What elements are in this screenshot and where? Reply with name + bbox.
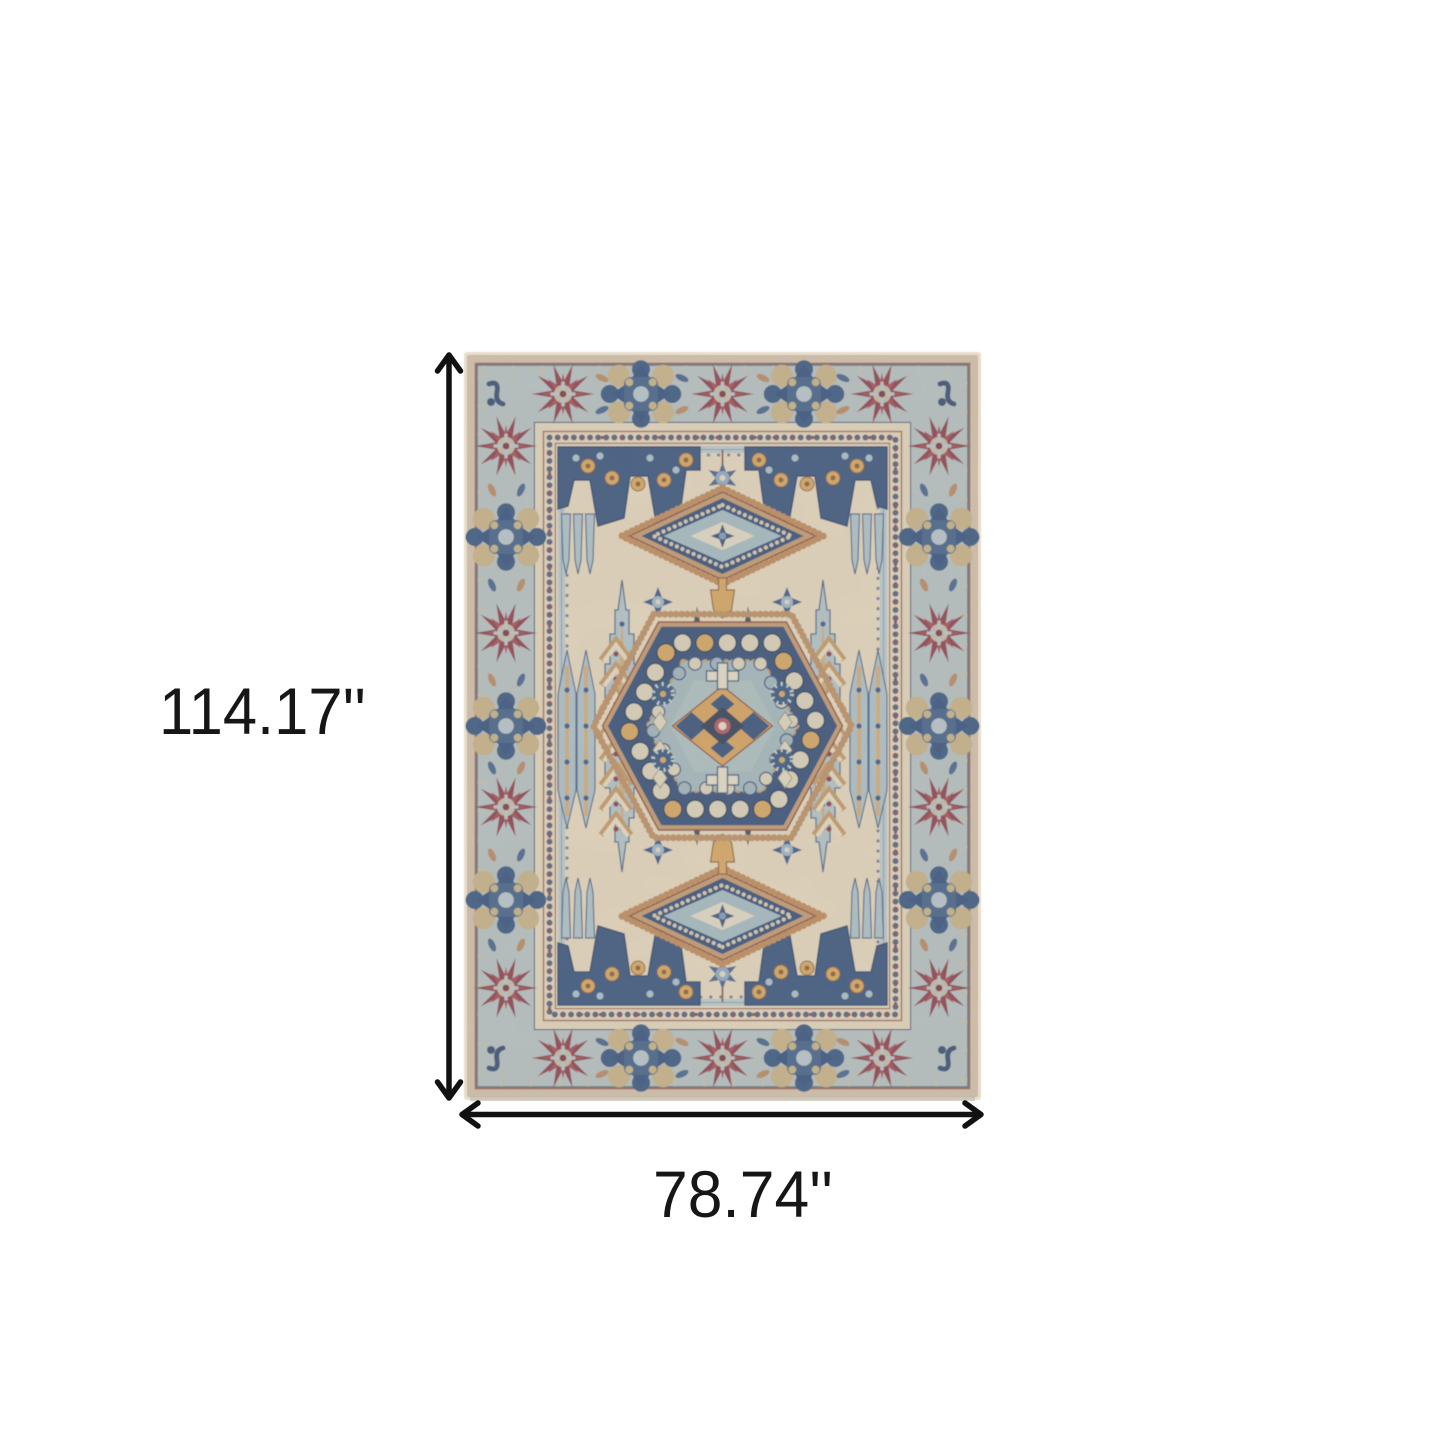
svg-text:114.17'': 114.17'' [159, 674, 366, 748]
svg-text:78.74'': 78.74'' [653, 1157, 833, 1231]
